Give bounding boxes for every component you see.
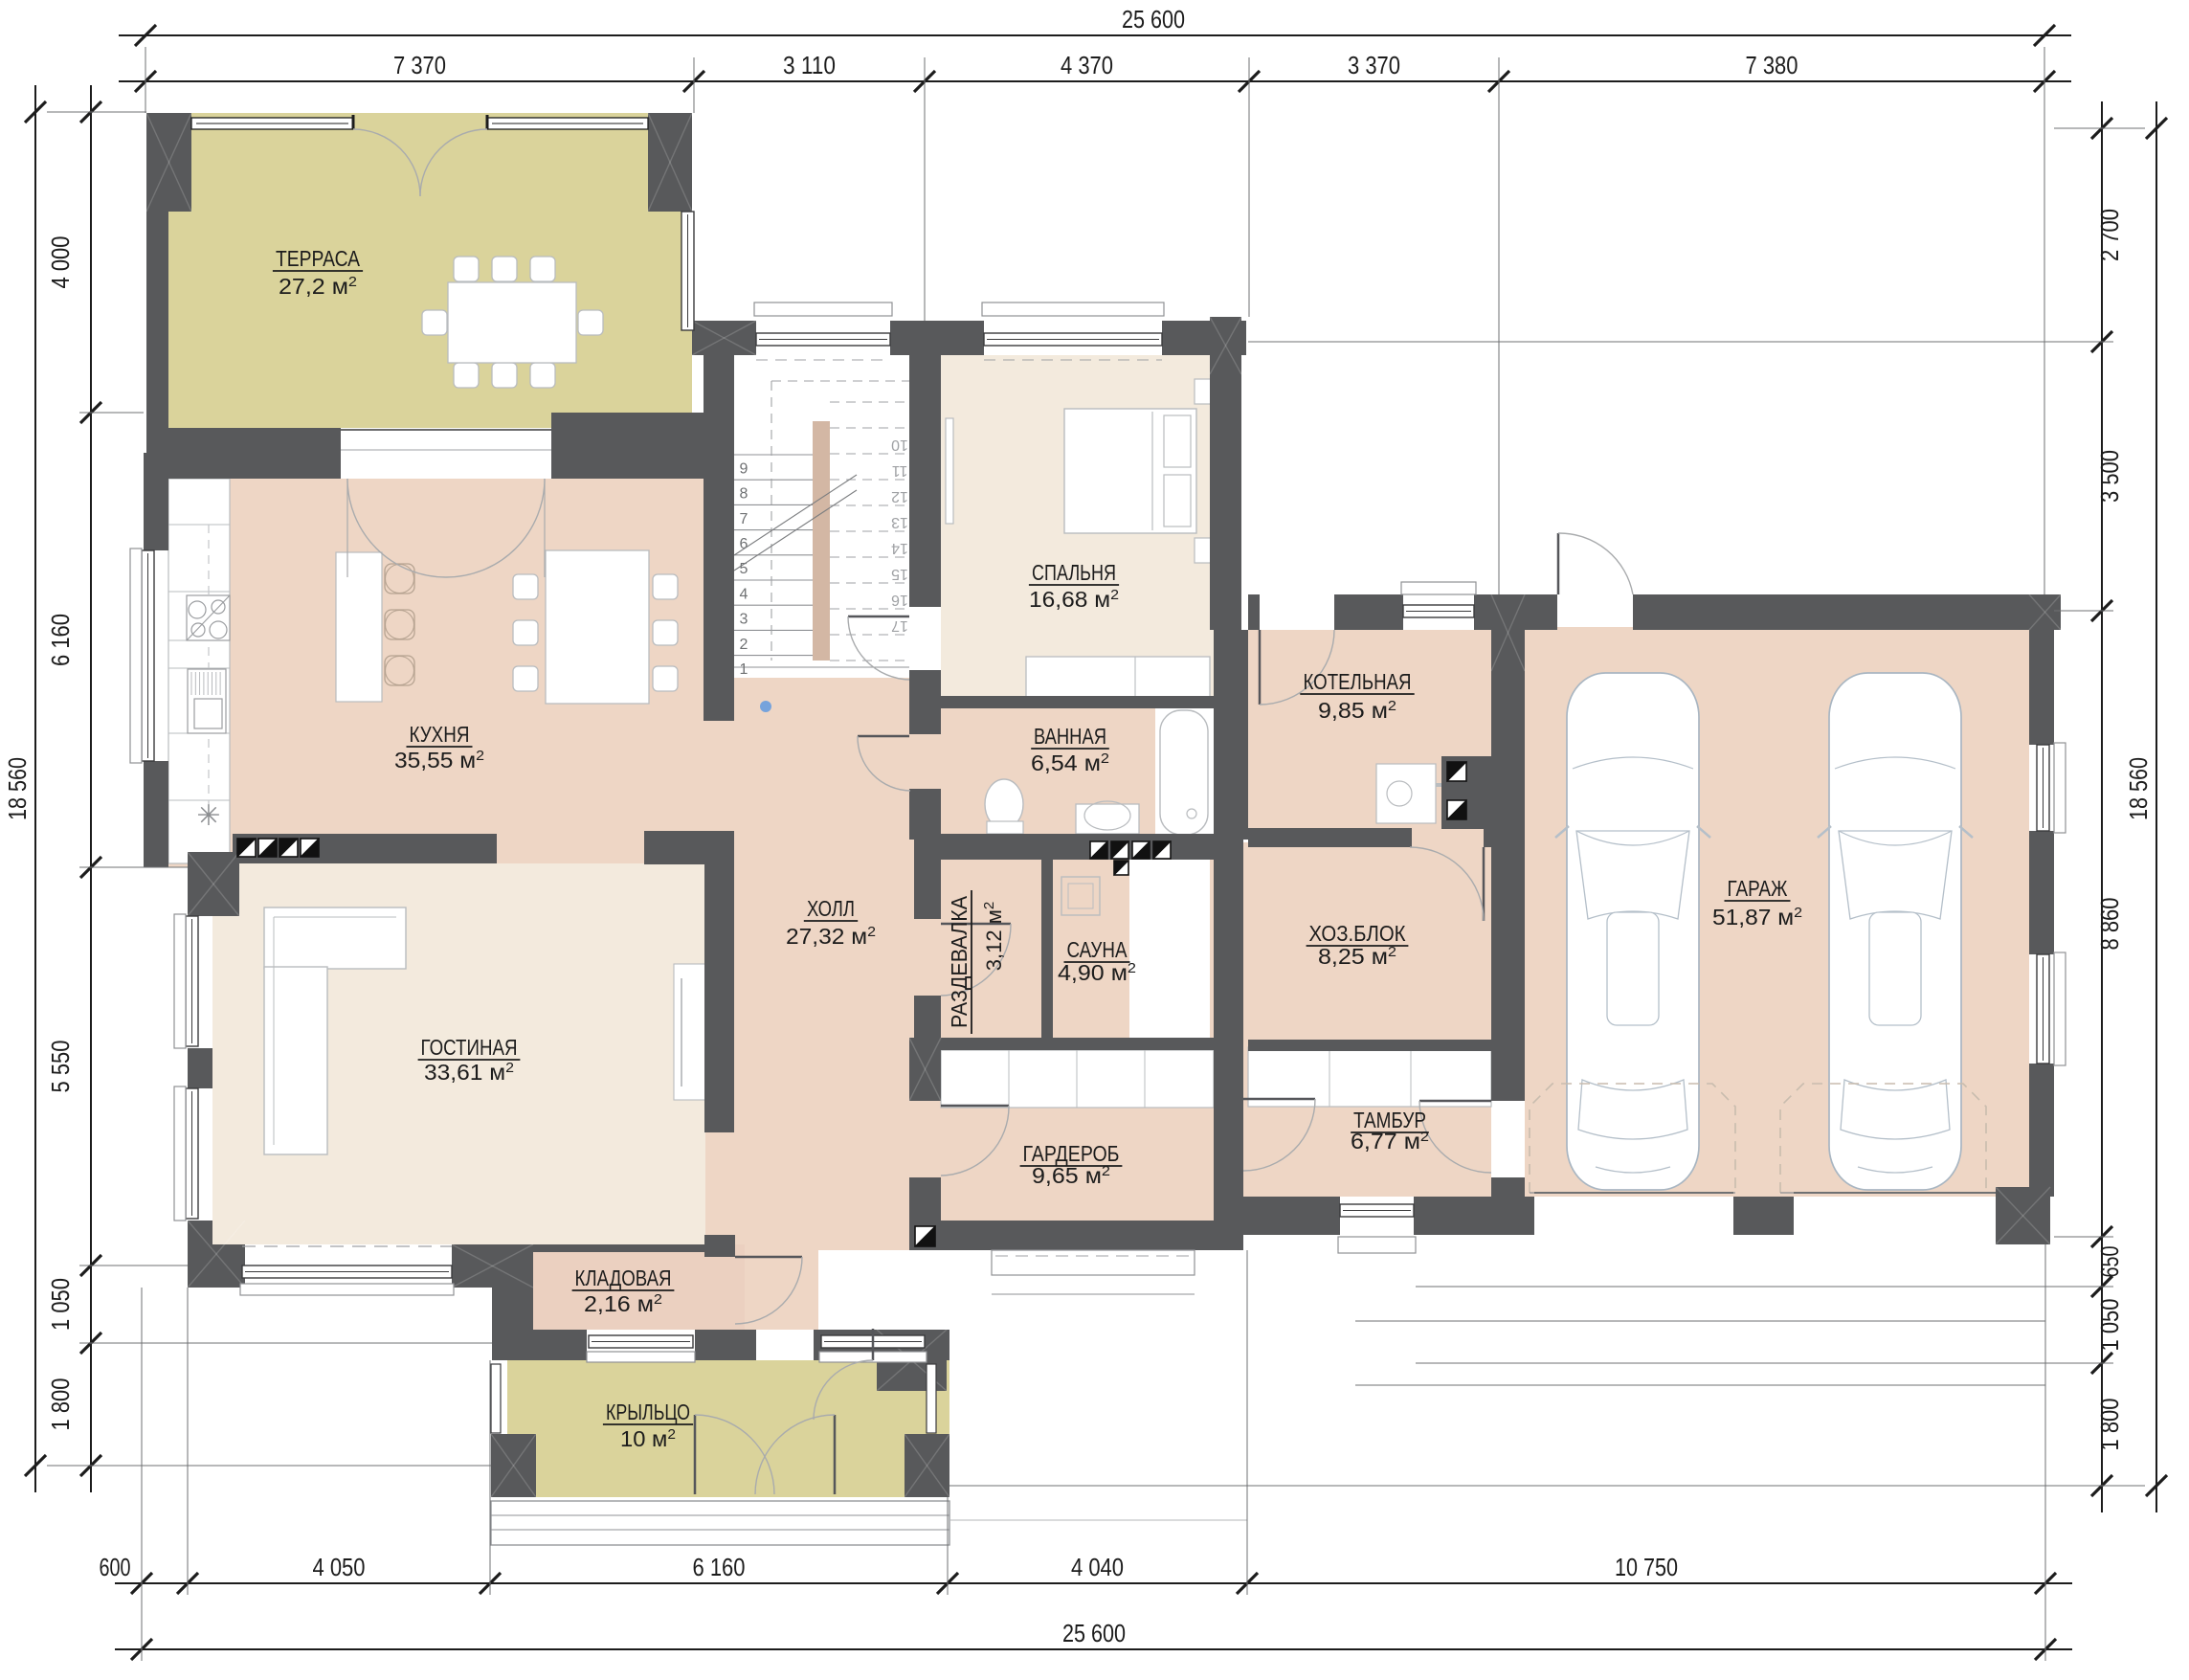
svg-text:4: 4 — [740, 586, 748, 602]
svg-text:3 370: 3 370 — [1348, 51, 1400, 79]
svg-text:КОТЕЛЬНАЯ: КОТЕЛЬНАЯ — [1304, 669, 1412, 694]
svg-text:6 160: 6 160 — [693, 1553, 746, 1581]
svg-text:9: 9 — [740, 460, 748, 477]
svg-text:1 050: 1 050 — [46, 1278, 75, 1331]
svg-text:4 370: 4 370 — [1061, 51, 1113, 79]
svg-text:3 110: 3 110 — [783, 51, 836, 79]
svg-text:ГОСТИНАЯ: ГОСТИНАЯ — [421, 1035, 518, 1060]
svg-text:16,68 м2: 16,68 м2 — [1029, 587, 1119, 612]
svg-text:САУНА: САУНА — [1067, 937, 1128, 962]
svg-text:1 050: 1 050 — [2095, 1299, 2124, 1352]
svg-text:5 550: 5 550 — [46, 1041, 75, 1093]
svg-text:25 600: 25 600 — [1122, 5, 1185, 34]
svg-text:18 560: 18 560 — [3, 757, 32, 820]
svg-text:600: 600 — [100, 1553, 131, 1581]
svg-text:27,2 м2: 27,2 м2 — [279, 274, 357, 299]
svg-text:10 750: 10 750 — [1615, 1553, 1678, 1581]
svg-text:7 380: 7 380 — [1746, 51, 1798, 79]
svg-text:ХОЗ.БЛОК: ХОЗ.БЛОК — [1309, 921, 1407, 946]
svg-text:10 м2: 10 м2 — [620, 1426, 676, 1451]
svg-text:КУХНЯ: КУХНЯ — [410, 722, 470, 747]
svg-text:12: 12 — [891, 488, 908, 504]
svg-text:6,77 м2: 6,77 м2 — [1351, 1129, 1429, 1154]
svg-text:9,85 м2: 9,85 м2 — [1318, 698, 1396, 723]
svg-text:650: 650 — [2095, 1246, 2124, 1278]
svg-text:СПАЛЬНЯ: СПАЛЬНЯ — [1032, 560, 1116, 585]
svg-text:ГАРАЖ: ГАРАЖ — [1728, 876, 1788, 901]
svg-text:33,61 м2: 33,61 м2 — [424, 1060, 514, 1085]
svg-text:11: 11 — [892, 462, 908, 479]
svg-text:9,65 м2: 9,65 м2 — [1032, 1163, 1110, 1188]
svg-text:18 560: 18 560 — [2124, 757, 2153, 820]
svg-text:1 800: 1 800 — [2095, 1399, 2124, 1451]
svg-text:2 700: 2 700 — [2095, 209, 2124, 261]
svg-text:4,90 м2: 4,90 м2 — [1058, 960, 1136, 985]
svg-text:РАЗДЕВАЛКА: РАЗДЕВАЛКА — [947, 895, 972, 1028]
svg-text:25 600: 25 600 — [1062, 1619, 1126, 1647]
svg-text:КРЫЛЬЦО: КРЫЛЬЦО — [606, 1400, 690, 1424]
svg-text:14: 14 — [891, 540, 908, 556]
svg-text:1: 1 — [740, 661, 748, 678]
svg-text:6,54 м2: 6,54 м2 — [1031, 750, 1109, 775]
svg-text:ВАННАЯ: ВАННАЯ — [1034, 724, 1106, 749]
svg-text:15: 15 — [891, 566, 908, 582]
svg-text:8 860: 8 860 — [2095, 898, 2124, 951]
svg-text:4 000: 4 000 — [46, 236, 75, 289]
svg-text:6 160: 6 160 — [46, 614, 75, 666]
svg-text:8,25 м2: 8,25 м2 — [1318, 944, 1396, 969]
svg-text:КЛАДОВАЯ: КЛАДОВАЯ — [575, 1266, 672, 1290]
svg-text:17: 17 — [891, 617, 908, 634]
svg-text:2,16 м2: 2,16 м2 — [584, 1291, 662, 1316]
svg-text:4 040: 4 040 — [1071, 1553, 1124, 1581]
svg-text:✳: ✳ — [196, 800, 220, 832]
svg-text:2: 2 — [740, 637, 748, 653]
svg-text:1 800: 1 800 — [46, 1378, 75, 1431]
svg-text:6: 6 — [740, 536, 748, 552]
svg-text:51,87 м2: 51,87 м2 — [1712, 905, 1802, 930]
svg-text:3: 3 — [740, 612, 748, 628]
svg-text:ХОЛЛ: ХОЛЛ — [807, 896, 855, 921]
svg-text:35,55 м2: 35,55 м2 — [394, 748, 484, 773]
svg-text:3 500: 3 500 — [2095, 450, 2124, 503]
svg-text:7: 7 — [740, 511, 748, 527]
svg-text:8: 8 — [740, 486, 748, 503]
svg-text:13: 13 — [891, 514, 908, 530]
svg-text:4 050: 4 050 — [313, 1553, 366, 1581]
svg-text:3,12 м2: 3,12 м2 — [981, 902, 1006, 971]
svg-text:27,32 м2: 27,32 м2 — [786, 924, 876, 949]
svg-text:10: 10 — [891, 437, 908, 453]
svg-text:16: 16 — [891, 592, 908, 608]
svg-text:ТЕРРАСА: ТЕРРАСА — [276, 246, 361, 271]
svg-text:7 370: 7 370 — [393, 51, 446, 79]
